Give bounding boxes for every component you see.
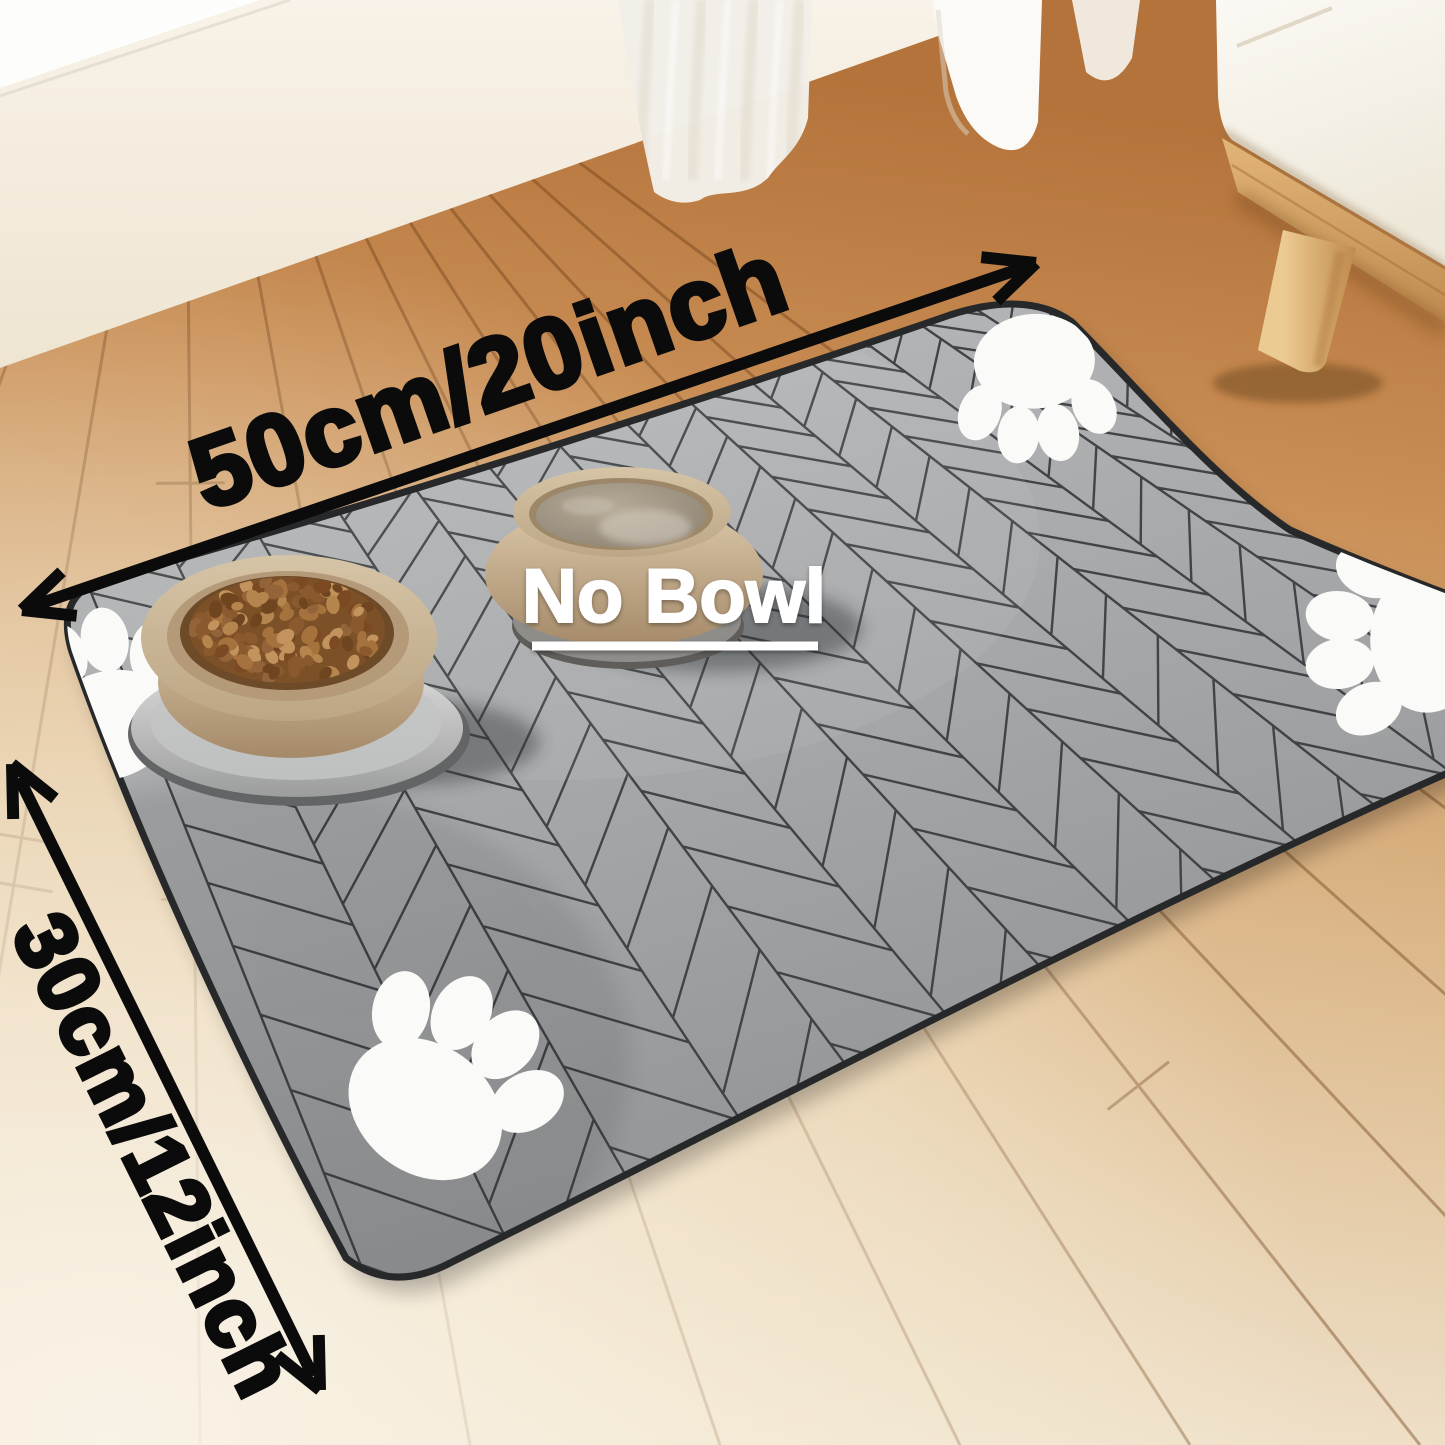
product-photo: 50cm/20inch 30cm/12inch No Bowl xyxy=(0,0,1445,1445)
no-bowl-annotation: No Bowl xyxy=(522,554,826,646)
water-highlight xyxy=(599,509,691,545)
no-bowl-label: No Bowl xyxy=(522,554,826,639)
water-glint xyxy=(562,497,614,515)
pet-mat-scene: 50cm/20inch 30cm/12inch No Bowl xyxy=(0,0,1445,1445)
